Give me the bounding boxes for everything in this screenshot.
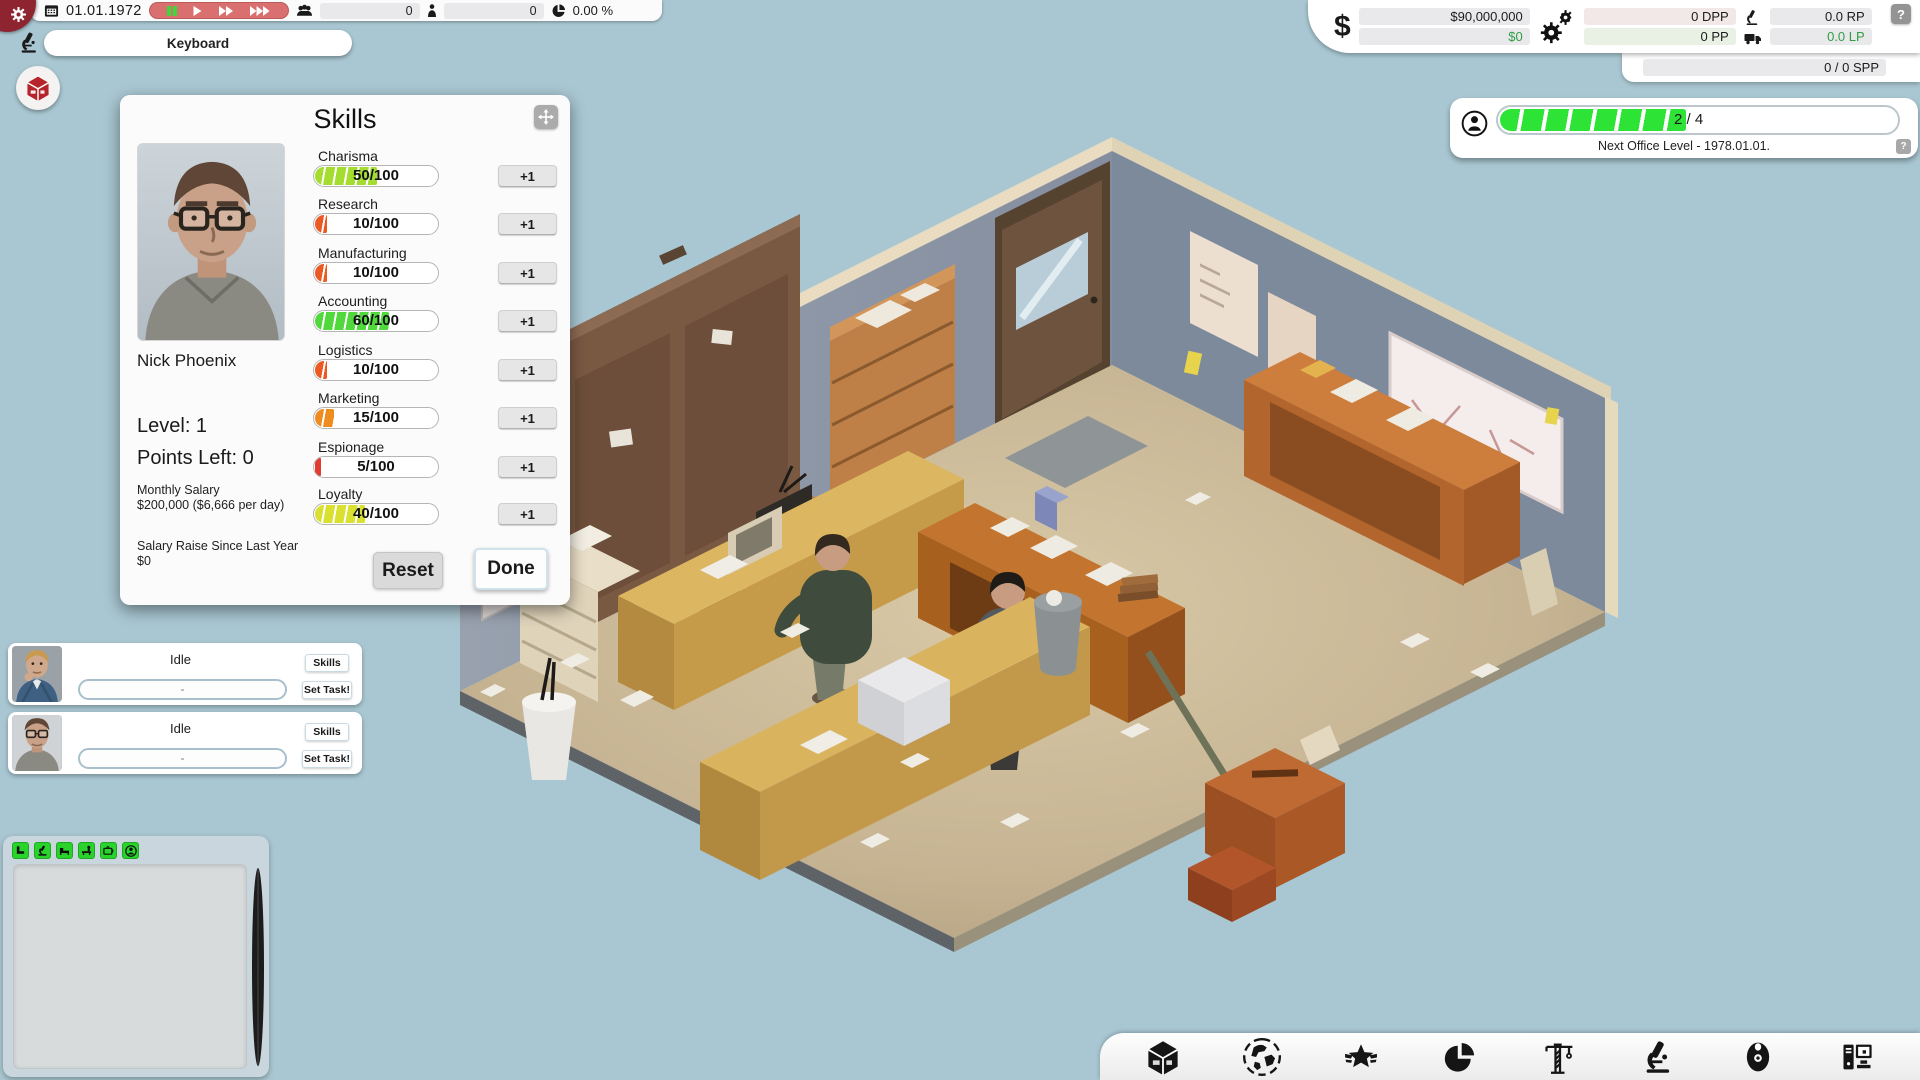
employee-portrait [137, 143, 285, 341]
employee-status: Idle [68, 721, 293, 736]
employee-card: Idle-SkillsSet Task! [8, 643, 362, 705]
microscope-icon [37, 845, 48, 856]
trash-bin [1034, 590, 1082, 676]
help-button[interactable]: ? [1891, 4, 1911, 24]
fast-forward-button[interactable] [218, 5, 234, 17]
rp-field: 0.0 RP [1770, 8, 1872, 25]
pause-button[interactable] [167, 6, 177, 16]
research-points-icon [1744, 9, 1762, 26]
market-share-pie-icon [551, 3, 566, 18]
skill-value: 15/100 [314, 408, 438, 428]
salary-raise-label: Salary Raise Since Last Year [137, 539, 352, 554]
skill-label: Marketing [318, 390, 379, 406]
build-chair-button[interactable] [12, 842, 29, 859]
person-icon [427, 4, 437, 18]
office-level-progress-label: 2 / 4 [1674, 111, 1703, 128]
skill-bar: 40/100 [313, 503, 439, 525]
skill-value: 50/100 [314, 166, 438, 186]
current-research-label: Keyboard [167, 36, 229, 51]
skill-plus-button[interactable]: +1 [498, 262, 557, 284]
next-office-level-caption: Next Office Level - 1978.01.01. [1450, 139, 1918, 153]
company-logo-button[interactable] [16, 66, 60, 110]
employee-name: Nick Phoenix [137, 351, 236, 371]
office-level-help-button[interactable]: ? [1896, 139, 1911, 154]
employee-portrait [12, 715, 62, 771]
skill-plus-button[interactable]: +1 [498, 503, 557, 525]
employee-skills-button[interactable]: Skills [305, 654, 349, 672]
build-list-scrollbar[interactable] [250, 867, 266, 1067]
cash-flow-field: $0 [1359, 28, 1530, 45]
employee-task-progress: - [78, 748, 287, 769]
company-cube-icon [1145, 1039, 1181, 1075]
skill-plus-button[interactable]: +1 [498, 407, 557, 429]
employee-task-progress: - [78, 679, 287, 700]
employee-card: Idle-SkillsSet Task! [8, 712, 362, 774]
hardware-computer-icon [1839, 1039, 1875, 1075]
world-icon [1243, 1038, 1281, 1076]
employee-set-task-button[interactable]: Set Task! [302, 681, 352, 699]
chair-icon [15, 845, 26, 856]
build-desk-person-button[interactable] [78, 842, 95, 859]
money-field: $90,000,000 [1359, 8, 1530, 25]
move-dialog-button[interactable] [534, 105, 558, 129]
toolbar-world-button[interactable] [1241, 1036, 1283, 1078]
achievements-star-icon [1341, 1040, 1381, 1074]
employee-portrait [12, 646, 62, 702]
toolbar-research-button[interactable] [1638, 1036, 1680, 1078]
salary-raise: Salary Raise Since Last Year $0 [137, 539, 352, 570]
skills-dialog-title: Skills [120, 104, 570, 135]
spp-strip: 0 / 0 SPP [1622, 53, 1920, 82]
skill-bar: 10/100 [313, 262, 439, 284]
toolbar-statistics-button[interactable] [1439, 1036, 1481, 1078]
points-left: Points Left: 0 [137, 447, 254, 470]
top-status-bar: 01.01.1972 0 0 0.00 % [30, 0, 662, 21]
employees-icon [296, 4, 313, 18]
skill-label: Accounting [318, 293, 387, 309]
game-date: 01.01.1972 [66, 3, 142, 19]
gear-icon [10, 6, 27, 23]
done-button[interactable]: Done [474, 548, 548, 590]
skill-bar: 10/100 [313, 359, 439, 381]
build-panel [3, 836, 269, 1077]
skill-value: 10/100 [314, 360, 438, 380]
skill-plus-button[interactable]: +1 [498, 456, 557, 478]
employee-status: Idle [68, 652, 293, 667]
current-research-display[interactable]: Keyboard [44, 30, 352, 56]
office-level-progress-bar: 2 / 4 [1496, 105, 1900, 135]
spp-field: 0 / 0 SPP [1643, 59, 1886, 76]
skill-label: Espionage [318, 439, 384, 455]
office-level-progress-fill [1500, 109, 1686, 131]
research-microscope-icon [18, 31, 41, 54]
toolbar-company-button[interactable] [1142, 1036, 1184, 1078]
skill-bar: 50/100 [313, 165, 439, 187]
employee-skills-button[interactable]: Skills [305, 723, 349, 741]
monthly-salary-label: Monthly Salary [137, 483, 307, 498]
stats-pie-icon [1442, 1039, 1478, 1075]
products-disc-icon [1741, 1039, 1775, 1075]
employee-level: Level: 1 [137, 415, 207, 438]
skill-value: 5/100 [314, 457, 438, 477]
skill-value: 10/100 [314, 214, 438, 234]
calendar-icon [44, 3, 59, 18]
reset-button[interactable]: Reset [373, 552, 443, 589]
finance-panel: $ $90,000,000 $0 0 DPP 0 PP [1308, 0, 1920, 53]
move-icon [538, 109, 554, 125]
construction-crane-icon [1542, 1039, 1578, 1075]
skill-bar: 10/100 [313, 213, 439, 235]
company-cube-logo-icon [25, 75, 51, 101]
build-item-list [13, 864, 247, 1069]
gears-icon [1538, 6, 1576, 48]
toolbar-products-button[interactable] [1737, 1036, 1779, 1078]
skill-value: 40/100 [314, 504, 438, 524]
tv-icon [103, 845, 114, 856]
skill-bar: 60/100 [313, 310, 439, 332]
logistics-truck-icon [1744, 31, 1762, 45]
monthly-salary: Monthly Salary $200,000 ($6,666 per day) [137, 483, 307, 514]
skill-bar: 5/100 [313, 456, 439, 478]
dpp-field: 0 DPP [1584, 8, 1736, 25]
market-share-value: 0.00 % [573, 3, 613, 18]
pp-field: 0 PP [1584, 28, 1736, 45]
build-sofa-button[interactable] [56, 842, 73, 859]
main-toolbar [1100, 1033, 1920, 1080]
play-button[interactable] [192, 5, 203, 17]
skill-label: Loyalty [318, 486, 362, 502]
fastest-button[interactable] [249, 5, 270, 17]
skill-plus-button[interactable]: +1 [498, 165, 557, 187]
speed-controls [149, 2, 289, 19]
character-icon [125, 845, 137, 857]
build-microscope-button[interactable] [34, 842, 51, 859]
skill-plus-button[interactable]: +1 [498, 310, 557, 332]
employee-set-task-button[interactable]: Set Task! [302, 750, 352, 768]
build-category-buttons [12, 842, 139, 859]
skills-dialog: Skills Nick Phoenix Level: 1 Points Left… [120, 95, 570, 605]
skill-label: Charisma [318, 148, 378, 164]
lp-field: 0.0 LP [1770, 28, 1872, 45]
salary-raise-value: $0 [137, 554, 352, 569]
monthly-salary-value: $200,000 ($6,666 per day) [137, 498, 307, 513]
toolbar-hardware-button[interactable] [1836, 1036, 1878, 1078]
desk-person-icon [81, 845, 92, 856]
skill-plus-button[interactable]: +1 [498, 213, 557, 235]
visitors-count-field: 0 [444, 3, 544, 19]
research-microscope-icon [1641, 1039, 1677, 1075]
skill-label: Manufacturing [318, 245, 407, 261]
office-level-panel: 2 / 4 Next Office Level - 1978.01.01. ? [1450, 98, 1918, 158]
build-character-button[interactable] [122, 842, 139, 859]
character-icon [1461, 110, 1488, 137]
skill-value: 10/100 [314, 263, 438, 283]
toolbar-construction-button[interactable] [1539, 1036, 1581, 1078]
build-tv-button[interactable] [100, 842, 117, 859]
skill-plus-button[interactable]: +1 [498, 359, 557, 381]
sofa-icon [59, 845, 70, 856]
skill-label: Logistics [318, 342, 372, 358]
skill-label: Research [318, 196, 378, 212]
dollar-icon: $ [1334, 10, 1351, 44]
skill-bar: 15/100 [313, 407, 439, 429]
toolbar-achievements-button[interactable] [1340, 1036, 1382, 1078]
skill-value: 60/100 [314, 311, 438, 331]
employees-count-field: 0 [320, 3, 420, 19]
